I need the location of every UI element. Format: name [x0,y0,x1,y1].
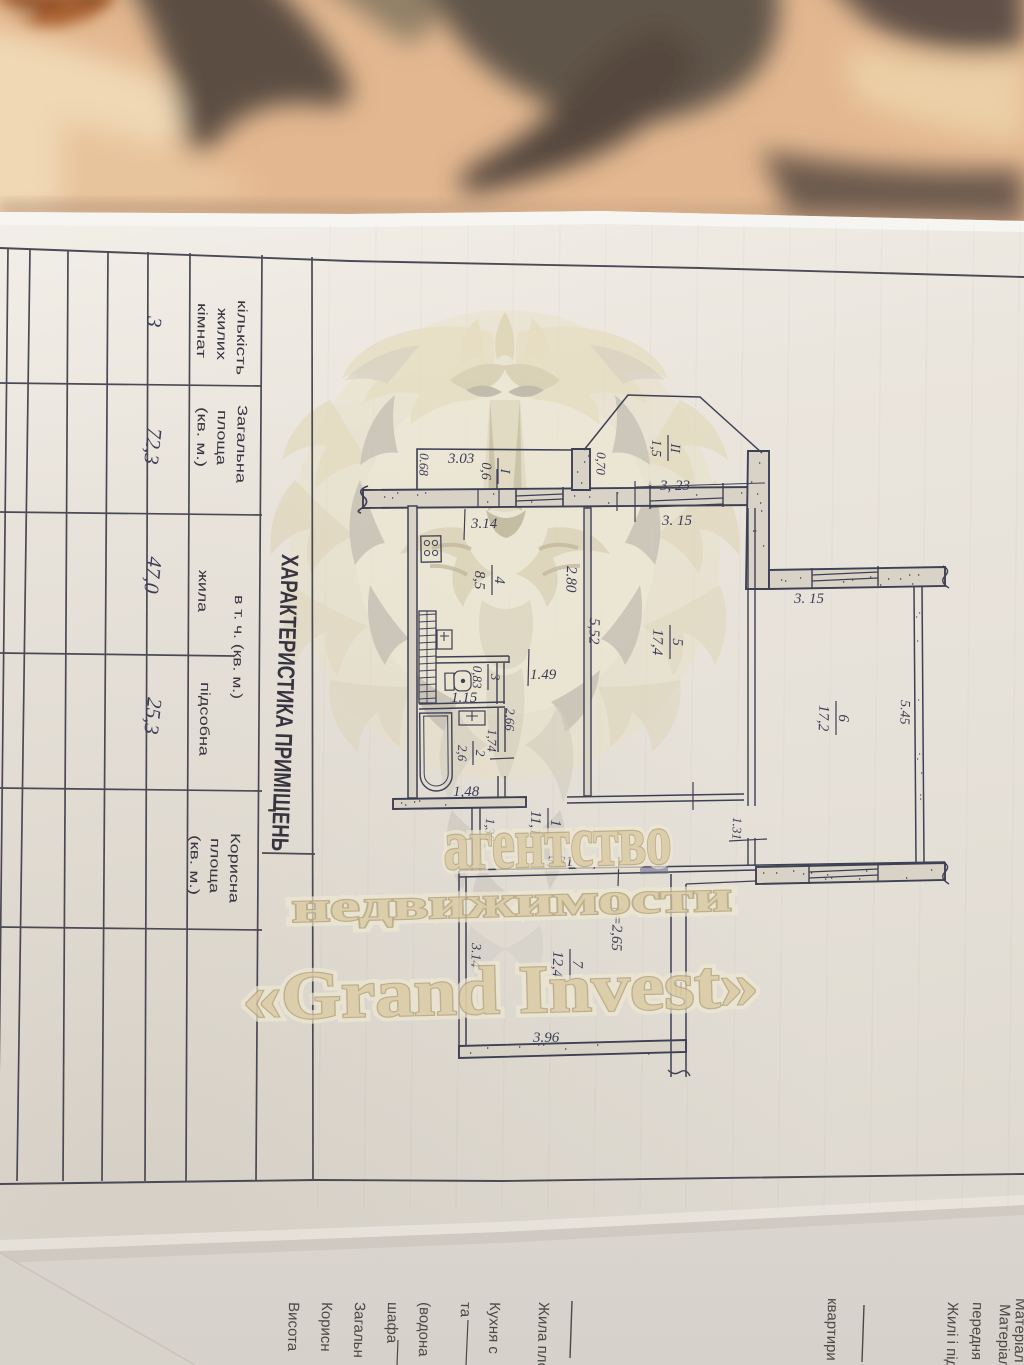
svg-text:3. 15: 3. 15 [793,591,825,607]
svg-text:3.96: 3.96 [532,1030,560,1046]
svg-text:жила: жила [195,570,211,613]
svg-text:2,66: 2,66 [502,708,518,732]
svg-text:жилих: жилих [214,308,230,361]
svg-text:1.15: 1.15 [451,690,478,706]
svg-text:25,3: 25,3 [139,696,167,735]
svg-text:кількість: кількість [233,300,250,375]
svg-text:1,74: 1,74 [484,729,500,753]
svg-text:3.03: 3.03 [447,451,474,467]
svg-text:підсобна: підсобна [196,682,213,757]
svg-text:площа: площа [214,410,230,466]
svg-text:0.68: 0.68 [416,453,432,477]
svg-text:шафа: шафа [383,1302,401,1344]
svg-text:72,3: 72,3 [139,426,167,465]
svg-text:0,70: 0,70 [593,452,609,476]
svg-text:3.14: 3.14 [470,516,498,532]
svg-text:3: 3 [488,673,503,681]
svg-text:Корисна: Корисна [227,833,243,904]
svg-text:1,5: 1,5 [648,439,663,457]
svg-text:3, 23: 3, 23 [659,478,690,494]
svg-text:(кв. м.): (кв. м.) [187,835,203,895]
svg-text:кімнат: кімнат [194,303,210,358]
svg-text:2: 2 [473,750,488,757]
svg-text:передня: передня [968,1302,986,1360]
svg-text:(кв. м.): (кв. м.) [194,407,210,467]
svg-text:5,52: 5,52 [585,618,602,645]
svg-text:в т. ч. (кв. м.): в т. ч. (кв. м.) [230,595,247,699]
svg-text:Жилі і підс: Жилі і підс [942,1302,961,1365]
svg-text:0,6: 0,6 [478,462,493,480]
svg-text:8,5: 8,5 [471,571,487,591]
svg-text:1,48: 1,48 [453,784,480,800]
svg-text:6: 6 [835,714,851,722]
svg-text:2.80: 2.80 [562,566,579,593]
svg-text:3. 15: 3. 15 [661,513,693,529]
svg-text:1.31: 1.31 [729,817,745,840]
svg-text:2,6: 2,6 [455,745,470,762]
svg-text:5.45: 5.45 [896,700,912,725]
svg-text:0,83: 0,83 [470,666,486,690]
svg-text:Жила пло: Жила пло [534,1302,552,1365]
svg-text:47,0: 47,0 [139,555,167,595]
svg-text:квартири: квартири [823,1298,841,1361]
svg-text:17,2: 17,2 [815,705,832,732]
svg-text:1.49: 1.49 [530,667,557,683]
svg-text:та: та [457,1302,474,1318]
svg-text:агентство: агентство [442,799,672,885]
svg-text:Висота: Висота [284,1302,302,1352]
svg-text:площа: площа [207,838,223,894]
svg-text:II: II [667,442,682,454]
svg-text:Загальн: Загальн [350,1302,368,1358]
svg-text:Корисн: Корисн [317,1302,335,1352]
svg-text:Кухня с: Кухня с [485,1302,503,1355]
svg-text:Загальна: Загальна [233,405,250,484]
svg-text:17,4: 17,4 [649,629,666,656]
svg-text:4: 4 [491,576,507,584]
svg-text:(водона: (водона [415,1302,433,1358]
svg-text:Матеріал: Матеріал [995,1304,1013,1365]
svg-text:«Grand Invest»: «Grand Invest» [241,945,759,1034]
svg-text:5: 5 [669,638,685,646]
